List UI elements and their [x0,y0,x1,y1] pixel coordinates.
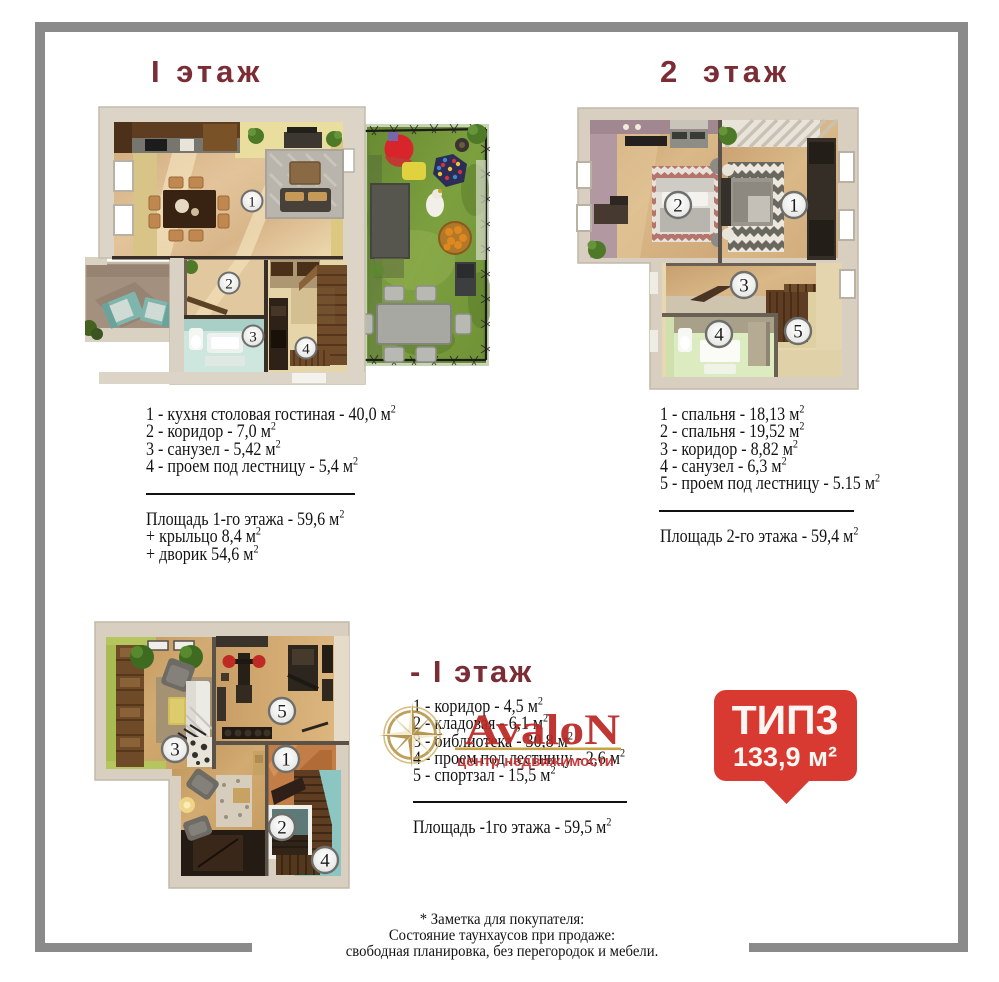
svg-text:ТИП3: ТИП3 [732,697,839,743]
svg-text:5: 5 [793,322,803,343]
svg-text:5: 5 [277,702,287,723]
svg-text:AvaloN: AvaloN [464,707,620,754]
svg-text:4: 4 [302,342,310,358]
svg-text:4: 4 [714,325,724,346]
svg-text:2: 2 [225,277,233,293]
svg-text:центр недвижимости: центр недвижимости [457,753,614,770]
svg-text:133,9 м²: 133,9 м² [733,742,837,772]
svg-text:1: 1 [248,195,256,211]
svg-text:1: 1 [281,750,291,771]
svg-text:2: 2 [277,818,287,839]
svg-text:3: 3 [170,740,180,761]
svg-text:3: 3 [249,330,257,346]
svg-text:3: 3 [739,276,749,297]
svg-text:4: 4 [320,851,330,872]
svg-text:1: 1 [789,196,799,217]
svg-text:2: 2 [673,196,683,217]
